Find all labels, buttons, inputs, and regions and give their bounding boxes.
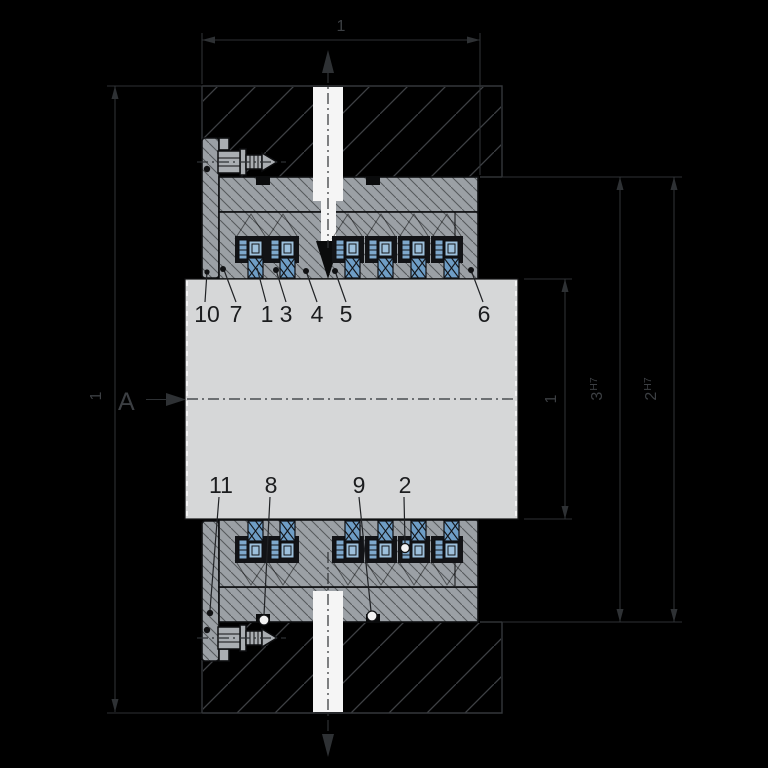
seal-assembly-section: 1 1 1 3H7 2H7 A 10 bbox=[0, 0, 768, 768]
callout-1: 1 bbox=[261, 301, 274, 327]
callout-10: 10 bbox=[194, 301, 220, 327]
gland-tab-lower bbox=[219, 649, 229, 661]
technical-drawing-canvas: 1 1 1 3H7 2H7 A 10 bbox=[0, 0, 768, 768]
gland-pin-lower bbox=[204, 627, 210, 633]
dim-top-label: 1 bbox=[337, 18, 346, 35]
gland-plate-upper bbox=[202, 138, 219, 278]
callout-5: 5 bbox=[340, 301, 353, 327]
callout-11: 11 bbox=[209, 472, 233, 498]
callout-8: 8 bbox=[265, 472, 278, 498]
view-label: A bbox=[118, 388, 135, 416]
callout-7: 7 bbox=[230, 301, 243, 327]
gland-pin-upper bbox=[204, 166, 210, 172]
callout-6: 6 bbox=[478, 301, 491, 327]
dim-left-label: 1 bbox=[88, 391, 105, 400]
gland-tab-upper bbox=[219, 138, 229, 150]
gland-plate-lower bbox=[202, 521, 219, 661]
callout-9: 9 bbox=[353, 472, 366, 498]
callout-4: 4 bbox=[311, 301, 324, 327]
callout-2: 2 bbox=[399, 472, 412, 498]
callout-3: 3 bbox=[280, 301, 293, 327]
dim-shaft-label: 1 bbox=[543, 394, 560, 403]
